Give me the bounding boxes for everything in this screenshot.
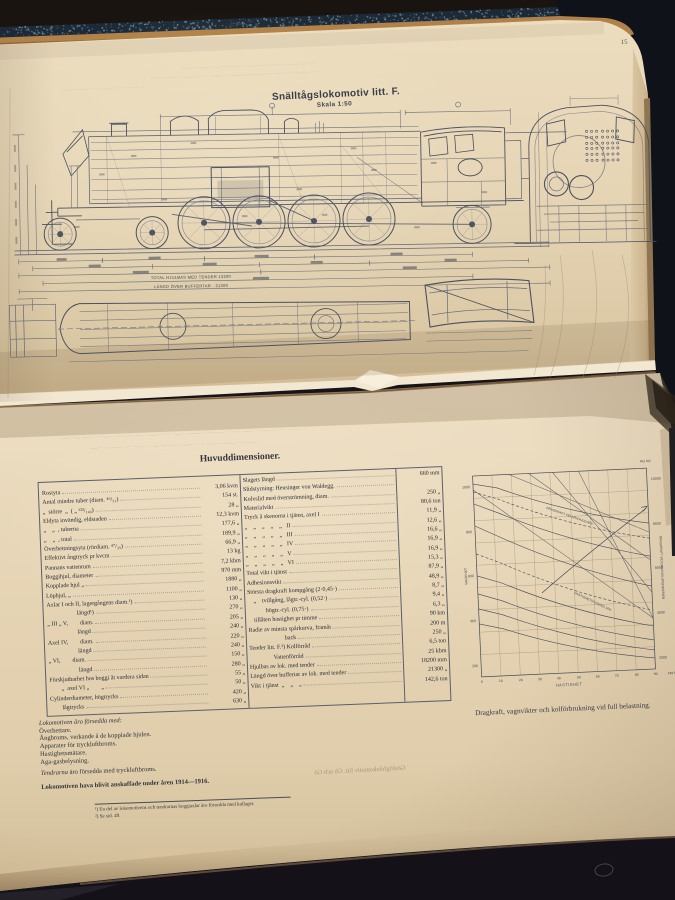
svg-text:KM/TIM: KM/TIM (668, 671, 675, 676)
svg-text:600: 600 (468, 574, 474, 578)
svg-text:80: 80 (635, 673, 639, 677)
svg-text:40: 40 (557, 676, 561, 680)
svg-text:400: 400 (470, 619, 476, 623)
svg-text:KG KG: KG KG (640, 459, 651, 463)
svg-text:0: 0 (481, 680, 483, 684)
svg-text:20: 20 (519, 678, 523, 682)
svg-text:2000: 2000 (659, 655, 667, 659)
svg-text:800: 800 (466, 530, 472, 534)
svg-text:60: 60 (596, 674, 600, 678)
svg-text:8000: 8000 (653, 522, 661, 526)
svg-text:4000: 4000 (657, 610, 665, 614)
svg-text:200: 200 (472, 664, 478, 668)
svg-text:90: 90 (654, 672, 658, 676)
svg-text:15: 15 (621, 39, 628, 46)
svg-text:10000: 10000 (651, 477, 661, 481)
svg-text:1000: 1000 (462, 485, 470, 489)
svg-text:70: 70 (615, 674, 619, 678)
svg-text:50: 50 (577, 675, 581, 679)
svg-text:10: 10 (499, 679, 503, 683)
svg-text:30: 30 (538, 677, 542, 681)
svg-text:VAGNVIKT: VAGNVIKT (464, 568, 469, 585)
